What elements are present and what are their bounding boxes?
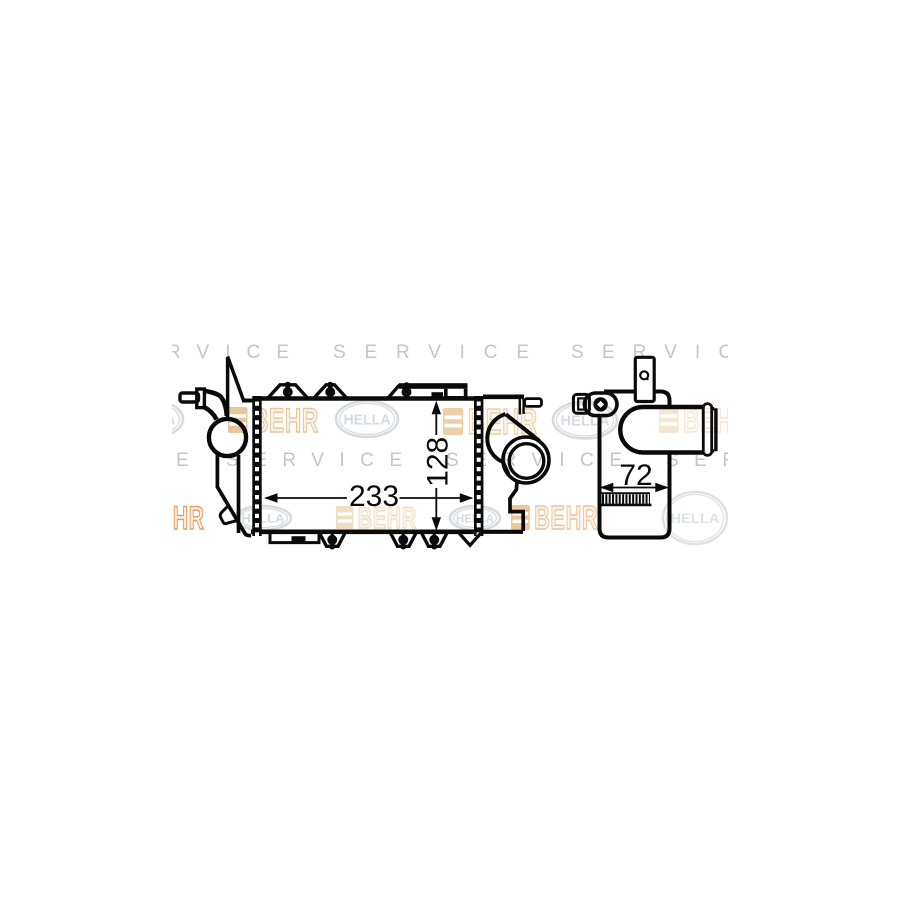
svg-text:72: 72 bbox=[619, 459, 652, 492]
svg-text:BEHR: BEHR bbox=[252, 402, 319, 440]
svg-text:128: 128 bbox=[421, 437, 454, 487]
svg-text:HELLA: HELLA bbox=[344, 411, 391, 428]
svg-text:BEHR: BEHR bbox=[534, 499, 598, 536]
svg-text:E: E bbox=[176, 450, 189, 471]
svg-text:233: 233 bbox=[349, 480, 399, 513]
svg-text:HELLA: HELLA bbox=[671, 510, 720, 526]
svg-text:HELLA: HELLA bbox=[242, 511, 285, 525]
